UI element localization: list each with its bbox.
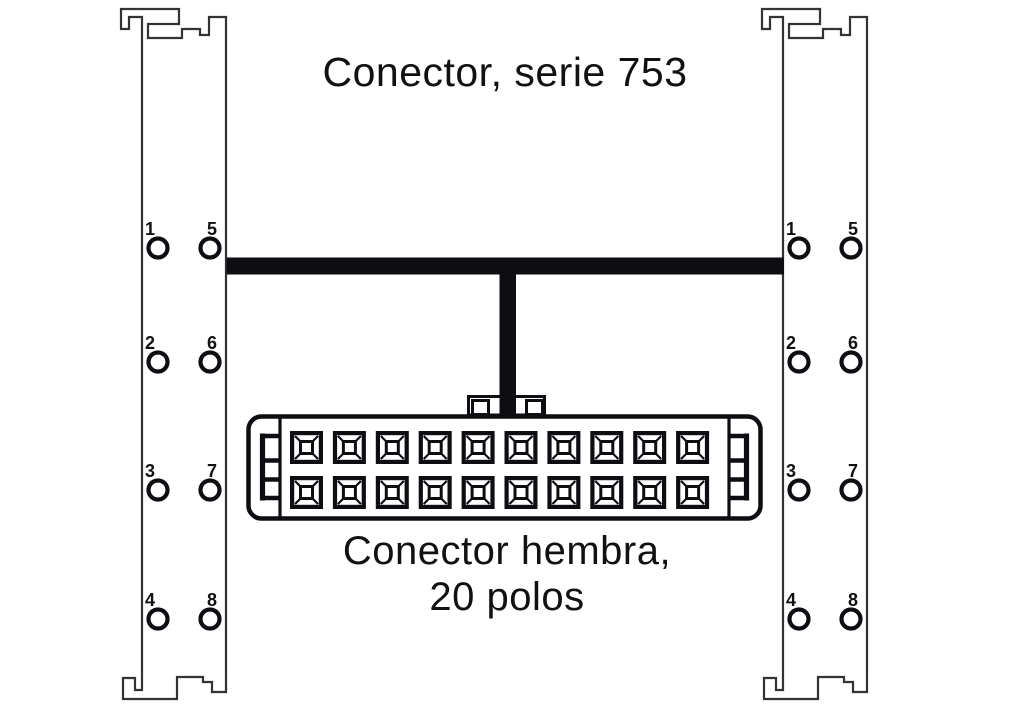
vertical-cable — [500, 265, 517, 415]
socket-contact — [335, 433, 364, 462]
tab-key-slot-right — [527, 401, 543, 415]
socket-contact — [464, 478, 493, 507]
socket-contact — [635, 478, 664, 507]
connector-label-line2: 20 polos — [429, 575, 584, 619]
right-rail-terminal-circle — [790, 481, 809, 500]
right-rail-pin-label-2: 2 — [779, 334, 803, 352]
socket-contact — [592, 478, 621, 507]
right-rail-pin-label-1: 1 — [779, 220, 803, 238]
left-rail-pin-label-4: 4 — [138, 591, 162, 609]
socket-contact — [421, 478, 450, 507]
left-rail-pin-label-8: 8 — [200, 591, 224, 609]
right-rail-pin-label-3: 3 — [779, 462, 803, 480]
socket-contact — [592, 433, 621, 462]
left-rail-pin-label-6: 6 — [200, 334, 224, 352]
right-rail-pin-label-6: 6 — [841, 334, 865, 352]
left-rail-pin-label-5: 5 — [200, 220, 224, 238]
left-rail-terminal-circle — [201, 610, 220, 629]
left-rail-pin-label-3: 3 — [138, 462, 162, 480]
socket-contact — [507, 478, 536, 507]
socket-contact — [678, 433, 707, 462]
left-rail-pin-label-1: 1 — [138, 220, 162, 238]
diagram-title: Conector, serie 753 — [322, 50, 687, 94]
right-rail-terminal-circle — [842, 481, 861, 500]
socket-contact — [292, 433, 321, 462]
right-rail-pin-label-8: 8 — [841, 591, 865, 609]
left-rail-terminal-circle — [149, 239, 168, 258]
connector-label-line1: Conector hembra, — [343, 529, 671, 573]
socket-contact — [635, 433, 664, 462]
socket-contact — [550, 478, 579, 507]
right-rail-terminal-circle — [842, 610, 861, 629]
socket-contact — [464, 433, 493, 462]
left-rail-terminal-circle — [201, 239, 220, 258]
socket-contact — [335, 478, 364, 507]
right-rail-terminal-circle — [842, 353, 861, 372]
right-rail-pin-label-5: 5 — [841, 220, 865, 238]
left-rail-terminal-circle — [149, 353, 168, 372]
right-rail-terminal-circle — [790, 239, 809, 258]
left-rail-terminal-circle — [149, 481, 168, 500]
socket-contact — [292, 478, 321, 507]
right-rail-terminal-circle — [790, 610, 809, 629]
socket-contact — [421, 433, 450, 462]
right-rail-terminal-circle — [790, 353, 809, 372]
right-rail-terminal-circle — [842, 239, 861, 258]
left-rail-terminal-circle — [201, 481, 220, 500]
socket-contact — [550, 433, 579, 462]
socket-contact — [378, 478, 407, 507]
socket-contact — [507, 433, 536, 462]
left-rail-terminal-circle — [201, 353, 220, 372]
tab-key-slot-left — [473, 401, 489, 415]
left-rail-terminal-circle — [149, 610, 168, 629]
socket-contact — [378, 433, 407, 462]
socket-contact — [678, 478, 707, 507]
diagram-stage: Conector, serie 753 Conector hembra, 20 … — [0, 0, 1024, 710]
right-rail-pin-label-4: 4 — [779, 591, 803, 609]
left-rail-pin-label-2: 2 — [138, 334, 162, 352]
right-rail-pin-label-7: 7 — [841, 462, 865, 480]
left-rail-pin-label-7: 7 — [200, 462, 224, 480]
